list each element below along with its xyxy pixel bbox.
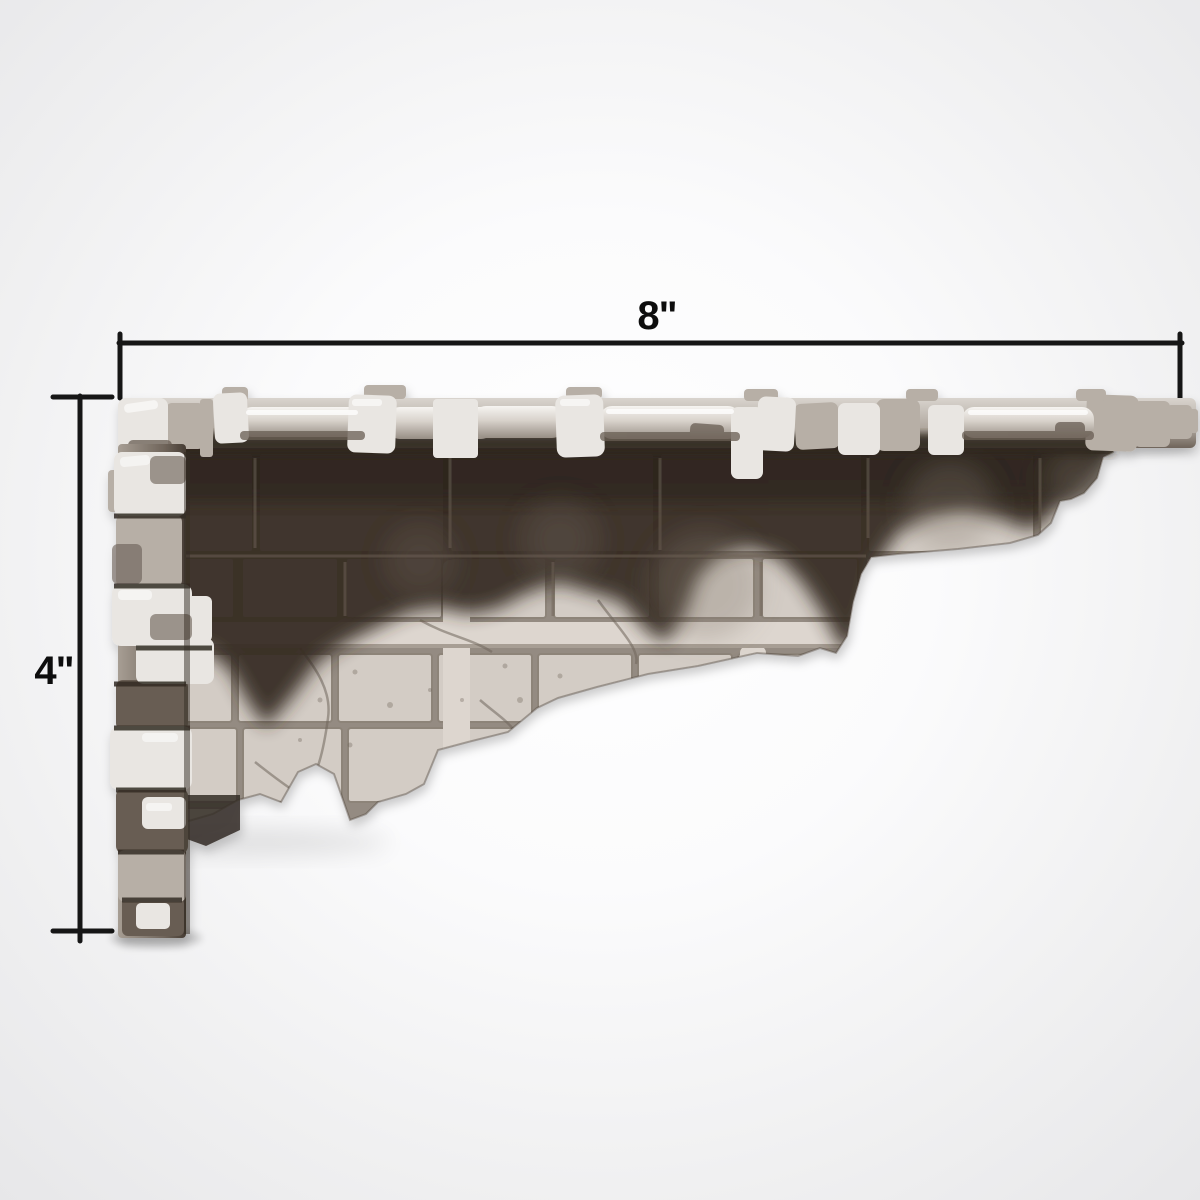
floor-tile (638, 654, 732, 722)
floor-tile (838, 654, 932, 722)
ledge-stone (166, 403, 204, 449)
ledge-stone (794, 402, 840, 450)
width-label: 8" (637, 294, 676, 338)
ledge-stone (1186, 409, 1198, 433)
ledge-bump (906, 389, 938, 401)
floor-tile (938, 654, 1032, 722)
column-stone (118, 850, 186, 902)
ledge-tab (928, 405, 964, 455)
column-stone (116, 680, 188, 730)
terrain-model (108, 385, 1198, 938)
column-fleck (136, 903, 170, 929)
column-fleck (142, 797, 186, 829)
ledge-rail (474, 406, 564, 438)
floor-tile (970, 558, 1066, 618)
ledge-stone (1134, 401, 1170, 447)
floor-tile (538, 654, 632, 722)
floor-tile (866, 558, 962, 618)
ledge-tab (838, 403, 880, 455)
floor-tile (338, 654, 432, 722)
column-right-edge (184, 452, 190, 934)
floor-tile (663, 728, 762, 802)
ledge-bump (1076, 389, 1106, 401)
floor-tile (558, 728, 657, 802)
raised-band-vertical (740, 646, 766, 768)
ledge-tab (433, 399, 478, 458)
product-render: 8" 4" (0, 0, 1200, 1200)
floor-tile (738, 654, 832, 722)
floor-tile (1074, 558, 1170, 618)
dimension-width (119, 334, 1182, 400)
ledge-stone (876, 399, 920, 451)
ledge-stone (200, 399, 213, 457)
height-label: 4" (34, 649, 73, 693)
column-stone (136, 638, 214, 684)
ledge-stone (756, 396, 797, 452)
